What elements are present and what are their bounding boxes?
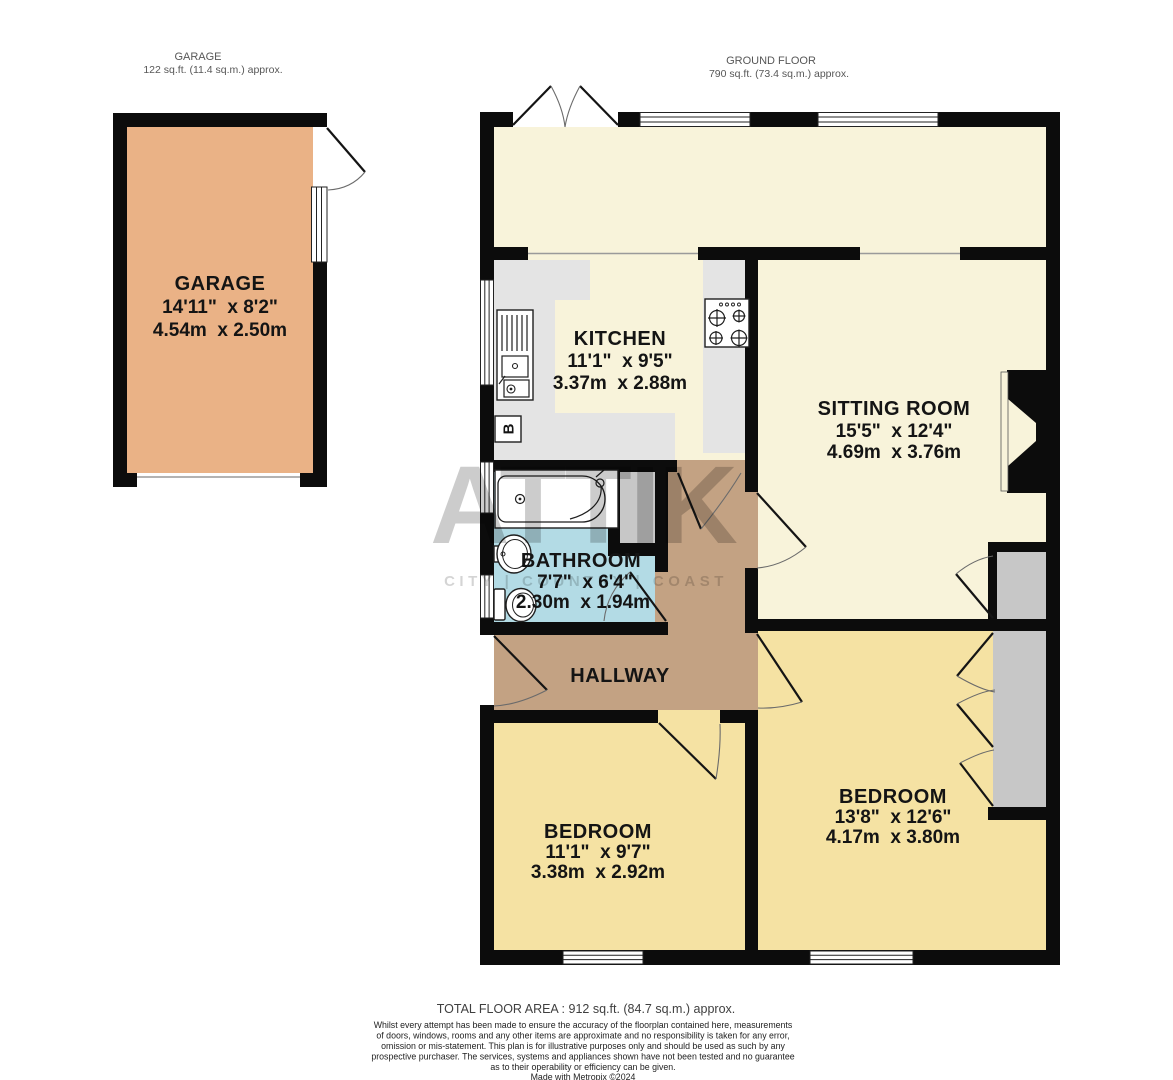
- sitting-door-opening: [745, 492, 758, 568]
- garage-dims-imperial: 14'11" x 8'2": [162, 297, 278, 318]
- disclaimer-line: of doors, windows, rooms and any other i…: [376, 1031, 789, 1041]
- bedroom-left-room-name: BEDROOM: [544, 821, 652, 843]
- hallway-label: HALLWAY: [570, 665, 670, 687]
- bedroom-right-label: BEDROOM 13'8" x 12'6" 4.17m x 3.80m: [826, 786, 960, 848]
- disclaimer-line: prospective purchaser. The services, sys…: [371, 1052, 794, 1062]
- bedroom-right-dims-metric: 4.17m x 3.80m: [826, 827, 960, 848]
- sitting-room-name: SITTING ROOM: [818, 398, 971, 420]
- total-floor-area: TOTAL FLOOR AREA : 912 sq.ft. (84.7 sq.m…: [437, 1002, 736, 1016]
- kitchen-sink-icon: [497, 310, 533, 400]
- bedroom-left-label: BEDROOM 11'1" x 9'7" 3.38m x 2.92m: [531, 821, 665, 883]
- floorplan-drawing: GARAGE 122 sq.ft. (11.4 sq.m.) approx. G…: [0, 0, 1173, 1080]
- boiler-label: B: [501, 423, 518, 434]
- bedroom-left-door-opening: [658, 710, 720, 723]
- kitchen-dims-metric: 3.37m x 2.88m: [553, 373, 687, 394]
- window: [818, 113, 938, 127]
- footer: TOTAL FLOOR AREA : 912 sq.ft. (84.7 sq.m…: [371, 1002, 794, 1080]
- watermark-brand: ATTIK: [430, 444, 737, 567]
- metropix-credit: Made with Metropix ©2024: [531, 1072, 636, 1080]
- watermark-tagline: CITY | COUNTRY | COAST: [444, 573, 728, 590]
- garage-side-door-leaf: [327, 128, 365, 172]
- kitchen-room-name: KITCHEN: [574, 328, 666, 350]
- garage-dims-metric: 4.54m x 2.50m: [153, 320, 287, 341]
- sitting-room-dims-metric: 4.69m x 3.76m: [827, 442, 961, 463]
- garage-header-subtitle: 122 sq.ft. (11.4 sq.m.) approx.: [143, 64, 282, 76]
- garage-window: [312, 187, 328, 262]
- ground-floor-title: GROUND FLOOR: [726, 55, 816, 67]
- garage-header: GARAGE 122 sq.ft. (11.4 sq.m.) approx.: [143, 51, 282, 76]
- window: [563, 951, 643, 964]
- disclaimer-line: as to their operability or efficiency ca…: [490, 1062, 675, 1072]
- garage-side-door-arc: [328, 172, 365, 190]
- bathroom-dims-metric: 2.30m x 1.94m: [516, 592, 650, 613]
- hob-icon: [705, 299, 749, 347]
- hallway-room-name: HALLWAY: [570, 665, 670, 687]
- garage-door-opening: [137, 473, 300, 487]
- sitting-room-dims-imperial: 15'5" x 12'4": [836, 421, 953, 442]
- window: [481, 280, 494, 385]
- kitchen-dims-imperial: 11'1" x 9'5": [567, 351, 672, 372]
- disclaimer-line: omission or mis-statement. This plan is …: [381, 1041, 785, 1051]
- garage-side-door-opening: [313, 127, 327, 187]
- garage-unit: GARAGE 14'11" x 8'2" 4.54m x 2.50m: [113, 113, 365, 487]
- bedroom-left-dims-metric: 3.38m x 2.92m: [531, 862, 665, 883]
- garage-room-name: GARAGE: [175, 273, 266, 295]
- ground-floor-subtitle: 790 sq.ft. (73.4 sq.m.) approx.: [709, 68, 849, 80]
- ground-floor-header: GROUND FLOOR 790 sq.ft. (73.4 sq.m.) app…: [709, 55, 849, 80]
- boiler-icon: B: [495, 416, 521, 442]
- window: [810, 951, 913, 964]
- window: [640, 113, 750, 127]
- sitting-room-label: SITTING ROOM 15'5" x 12'4" 4.69m x 3.76m: [818, 398, 971, 463]
- porch-floor: [494, 127, 1046, 247]
- bedroom-right-door-opening: [745, 633, 758, 710]
- garage-header-title: GARAGE: [174, 51, 221, 63]
- floorplan-page: GARAGE 122 sq.ft. (11.4 sq.m.) approx. G…: [0, 0, 1173, 1080]
- front-door-opening: [480, 635, 494, 705]
- french-doors: [513, 86, 618, 127]
- disclaimer-line: Whilst every attempt has been made to en…: [374, 1020, 793, 1030]
- bedroom-left-dims-imperial: 11'1" x 9'7": [545, 842, 650, 863]
- bedroom-right-dims-imperial: 13'8" x 12'6": [835, 807, 952, 828]
- bedroom-right-room-name: BEDROOM: [839, 786, 947, 808]
- chimney-breast: [1001, 370, 1046, 493]
